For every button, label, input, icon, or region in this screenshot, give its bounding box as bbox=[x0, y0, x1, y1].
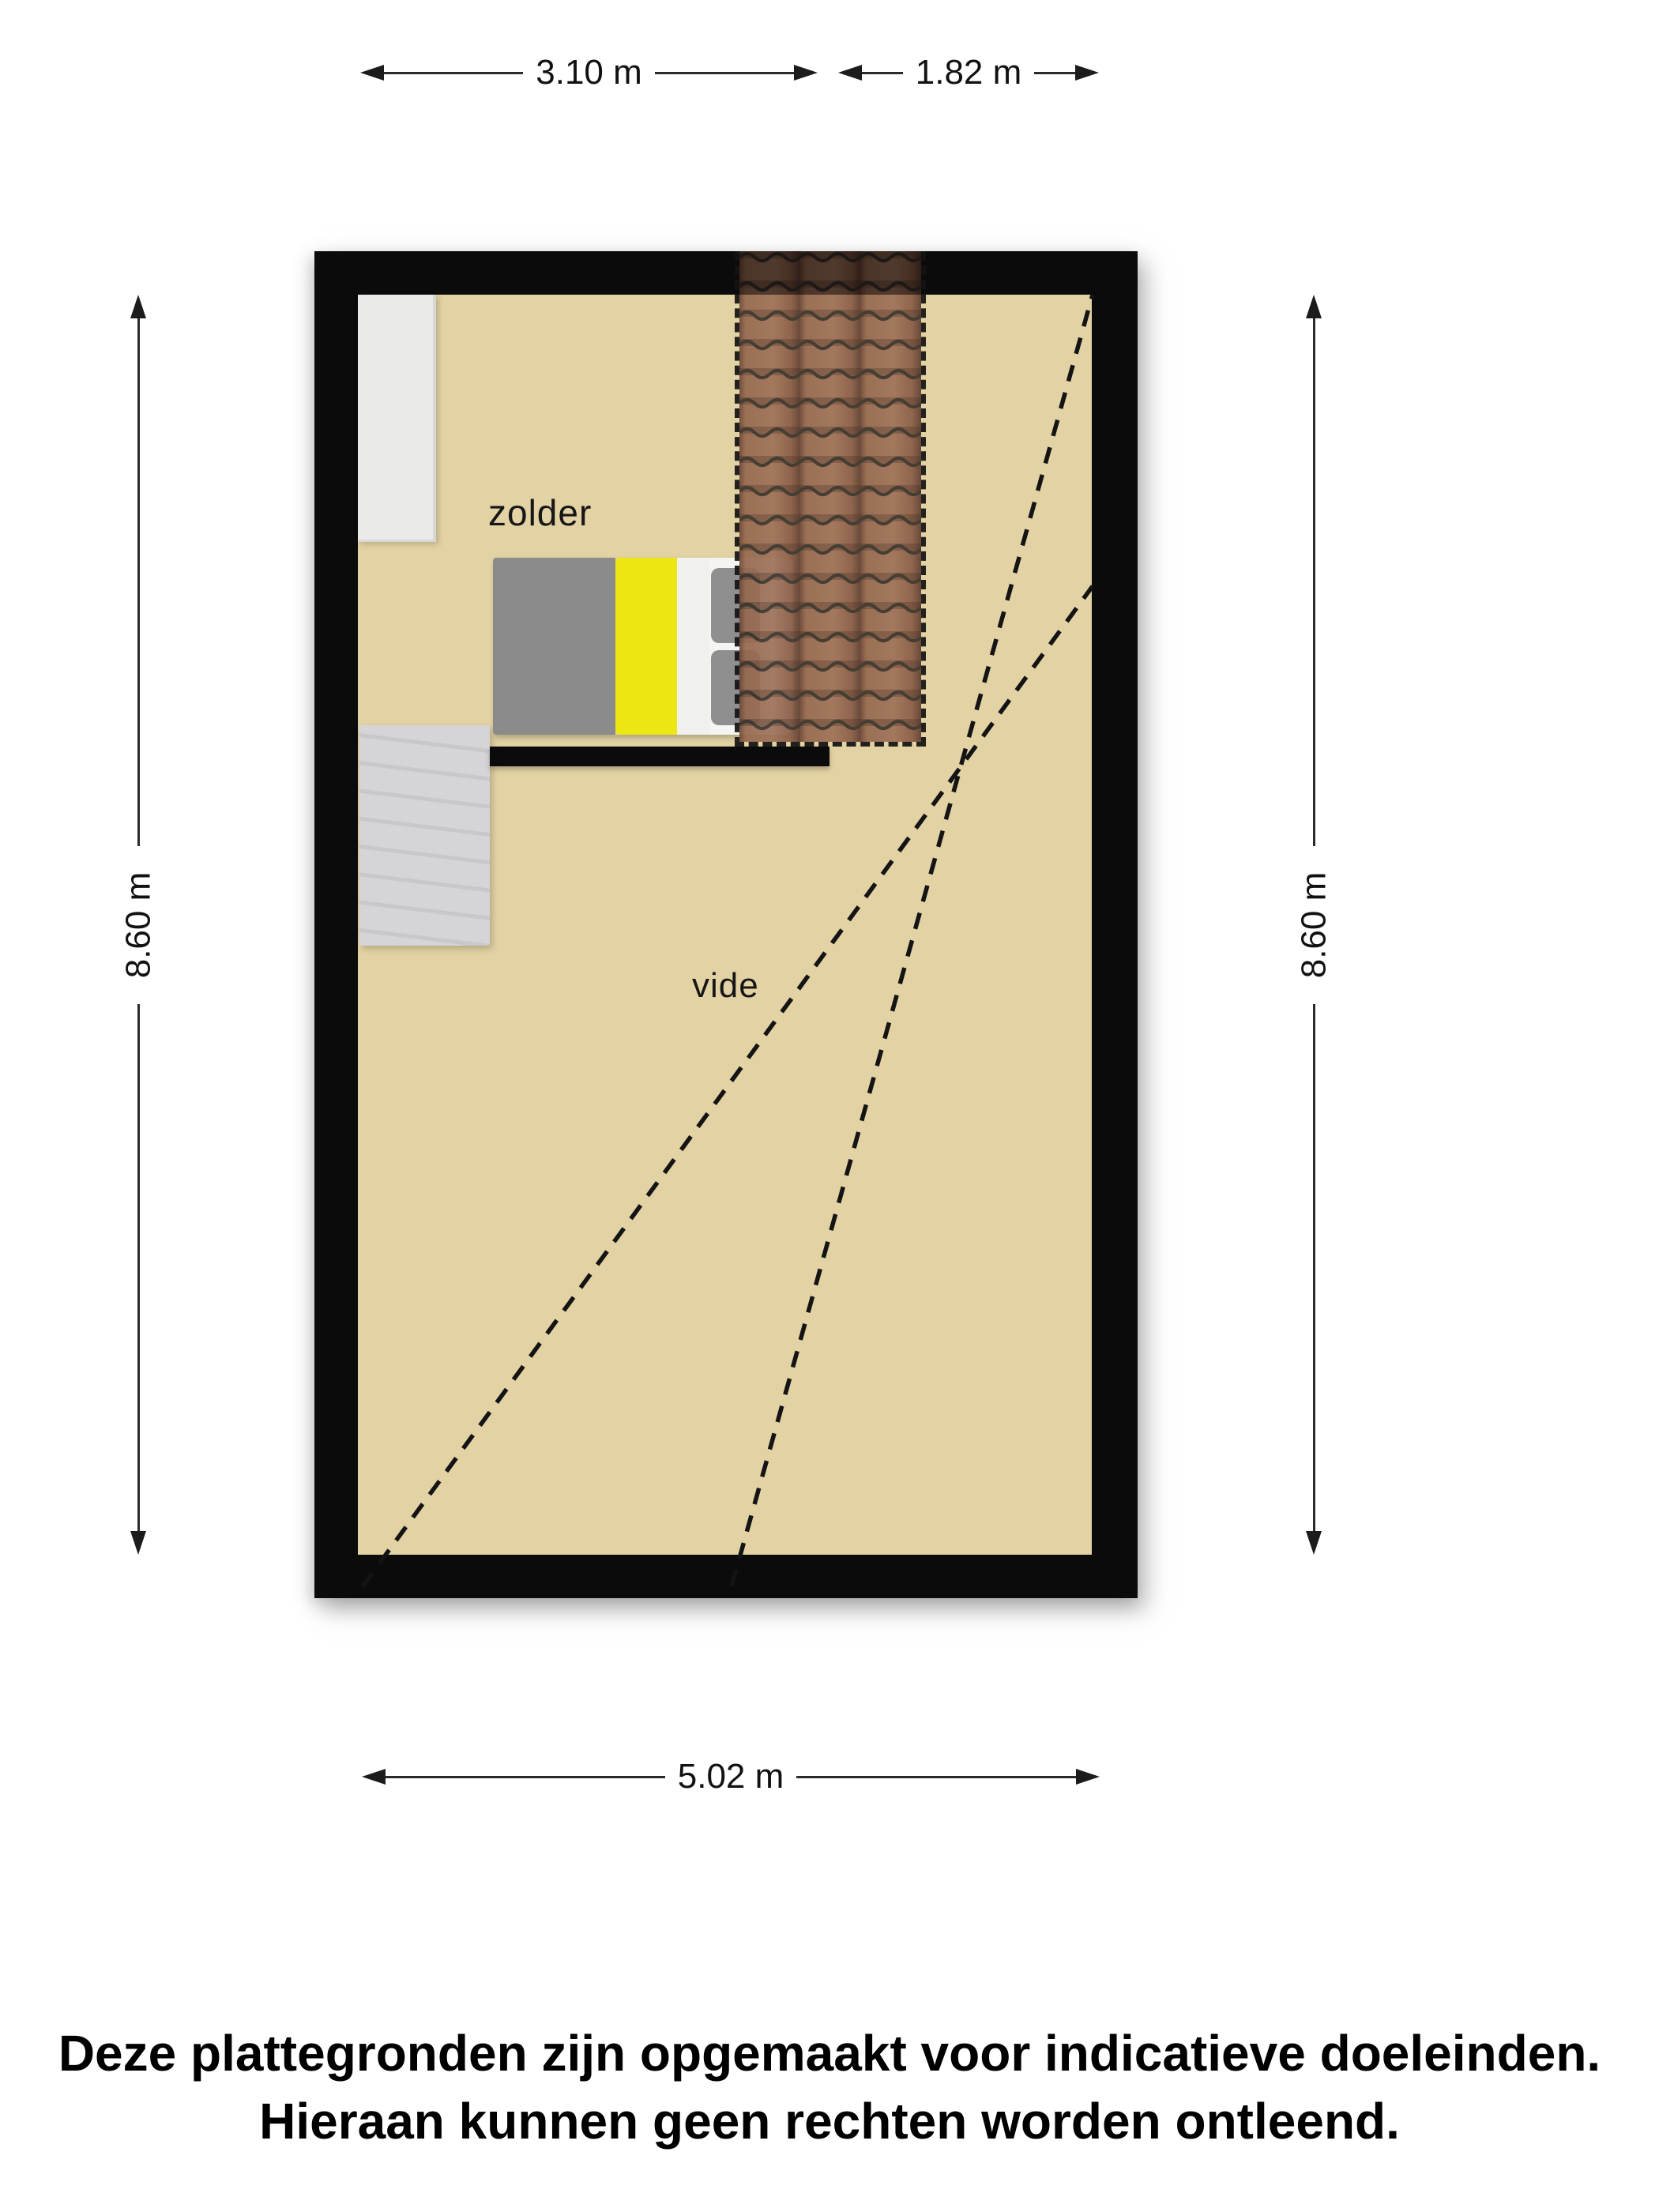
dimension-line bbox=[137, 1004, 140, 1532]
dimension-left: 8.60 m bbox=[121, 295, 156, 1555]
arrow-down-icon bbox=[130, 1531, 146, 1555]
arrow-left-icon bbox=[360, 65, 384, 81]
dimension-right: 8.60 m bbox=[1296, 295, 1331, 1555]
dimension-line bbox=[862, 72, 903, 74]
floorplan-page: 3.10 m 1.82 m 8.60 m 8.60 m 5.02 m bbox=[0, 0, 1659, 2212]
roof-overhang bbox=[735, 251, 926, 747]
room-label-zolder: zolder bbox=[488, 495, 592, 531]
dimension-top-void: 1.82 m bbox=[838, 45, 1099, 100]
dimension-label: 5.02 m bbox=[665, 1759, 797, 1794]
dimension-line bbox=[1313, 318, 1315, 846]
dimension-top-room: 3.10 m bbox=[360, 45, 818, 100]
dimension-line bbox=[655, 72, 794, 74]
dimension-line bbox=[137, 318, 140, 846]
disclaimer-line-1: Deze plattegronden zijn opgemaakt voor i… bbox=[0, 2019, 1659, 2087]
dimension-line bbox=[384, 72, 523, 74]
arrow-right-icon bbox=[1075, 65, 1099, 81]
arrow-right-icon bbox=[1076, 1769, 1100, 1785]
bed-blanket bbox=[493, 558, 615, 735]
dimension-line bbox=[1034, 72, 1075, 74]
arrow-left-icon bbox=[362, 1769, 386, 1785]
bed-accent-stripe bbox=[615, 558, 677, 735]
wardrobe bbox=[358, 295, 436, 542]
arrow-right-icon bbox=[794, 65, 818, 81]
dimension-line bbox=[1313, 1004, 1315, 1532]
attic-partition-wall bbox=[490, 747, 829, 766]
arrow-up-icon bbox=[130, 295, 146, 318]
roof-tiles bbox=[739, 251, 921, 742]
disclaimer-line-2: Hieraan kunnen geen rechten worden ontle… bbox=[0, 2087, 1659, 2155]
arrow-up-icon bbox=[1306, 295, 1322, 318]
room-label-vide: vide bbox=[692, 969, 759, 1003]
dimension-label: 3.10 m bbox=[523, 55, 655, 90]
disclaimer: Deze plattegronden zijn opgemaakt voor i… bbox=[0, 2019, 1659, 2155]
dimension-label: 1.82 m bbox=[903, 55, 1035, 90]
floorplan-canvas: zolder vide bbox=[314, 251, 1138, 1598]
dimension-bottom: 5.02 m bbox=[362, 1749, 1100, 1804]
staircase bbox=[359, 725, 490, 946]
dimension-label: 8.60 m bbox=[1296, 846, 1331, 1004]
dimension-label: 8.60 m bbox=[121, 846, 156, 1004]
dimension-line bbox=[796, 1776, 1076, 1778]
arrow-down-icon bbox=[1306, 1531, 1322, 1555]
bed-sheet bbox=[677, 558, 709, 735]
dimension-line bbox=[386, 1776, 665, 1778]
arrow-left-icon bbox=[838, 65, 862, 81]
